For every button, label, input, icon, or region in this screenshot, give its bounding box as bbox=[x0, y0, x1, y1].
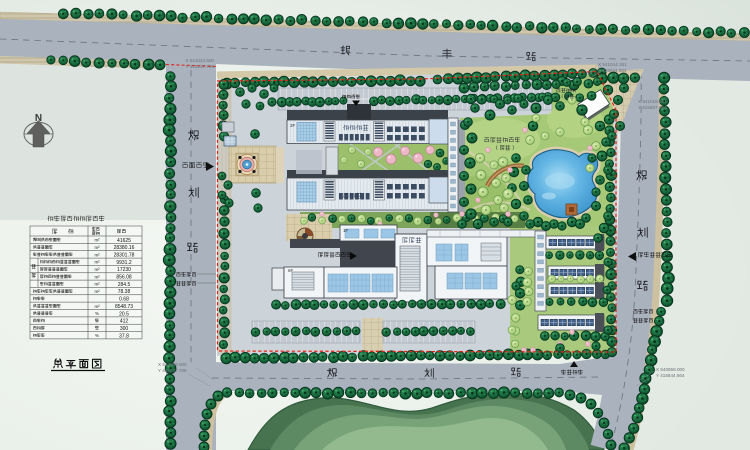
svg-text:Y 415844.664: Y 415844.664 bbox=[656, 373, 685, 378]
svg-text:m²: m² bbox=[94, 267, 100, 272]
svg-text:X 540858.000: X 540858.000 bbox=[656, 367, 685, 372]
svg-text:X 541044.161: X 541044.161 bbox=[598, 62, 627, 67]
svg-text:%: % bbox=[95, 311, 99, 316]
svg-text:41625: 41625 bbox=[117, 238, 131, 244]
svg-text:300: 300 bbox=[120, 326, 129, 332]
svg-text:Y 415857.664: Y 415857.664 bbox=[638, 105, 667, 110]
svg-text:m²: m² bbox=[94, 282, 100, 287]
svg-text:412: 412 bbox=[120, 319, 129, 325]
svg-text:78.38: 78.38 bbox=[118, 289, 131, 295]
svg-text:20.5: 20.5 bbox=[119, 311, 129, 317]
svg-text:%: % bbox=[95, 333, 99, 338]
svg-text:N: N bbox=[35, 113, 42, 124]
svg-text:28301.78: 28301.78 bbox=[114, 253, 135, 259]
svg-text:9931.2: 9931.2 bbox=[116, 260, 132, 266]
svg-text:m²: m² bbox=[94, 238, 100, 243]
svg-text:m²: m² bbox=[94, 304, 100, 309]
svg-text:m²: m² bbox=[94, 245, 100, 250]
svg-text:X 541018.161: X 541018.161 bbox=[638, 99, 667, 104]
svg-text:17230: 17230 bbox=[117, 267, 131, 273]
svg-text:0.68: 0.68 bbox=[119, 297, 129, 303]
svg-text:Y 415237.795: Y 415237.795 bbox=[158, 368, 187, 373]
svg-text:8548.73: 8548.73 bbox=[115, 304, 133, 310]
svg-text:m²: m² bbox=[94, 252, 100, 257]
svg-text:Y 415844.664: Y 415844.664 bbox=[598, 68, 627, 73]
svg-text:m²: m² bbox=[94, 260, 100, 265]
svg-text:3F: 3F bbox=[290, 123, 296, 128]
svg-text:6F: 6F bbox=[288, 268, 294, 273]
svg-text:Y 415237.795: Y 415237.795 bbox=[185, 64, 214, 69]
svg-text:X 541044.500: X 541044.500 bbox=[185, 58, 214, 63]
svg-text:37.8: 37.8 bbox=[119, 333, 129, 339]
svg-text:28380.16: 28380.16 bbox=[114, 245, 135, 251]
svg-text:856.08: 856.08 bbox=[116, 275, 132, 281]
svg-text:284.5: 284.5 bbox=[118, 282, 131, 288]
svg-text:1F: 1F bbox=[343, 228, 349, 233]
svg-text:m²: m² bbox=[94, 289, 100, 294]
svg-text:X 540859.000: X 540859.000 bbox=[158, 362, 187, 367]
svg-text:m²: m² bbox=[94, 274, 100, 279]
